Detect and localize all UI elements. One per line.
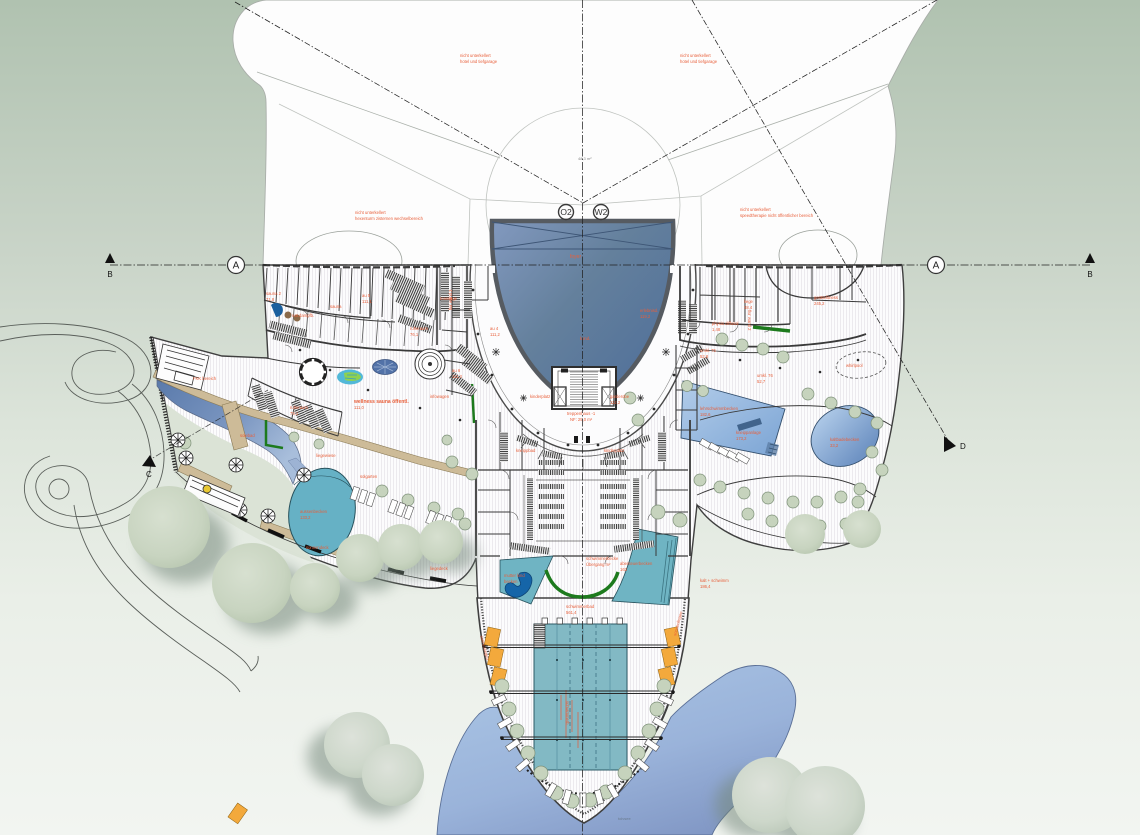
svg-text:au 6: au 6 — [452, 368, 461, 373]
svg-text:Übergang m²: Übergang m² — [586, 562, 611, 567]
svg-text:ruheraum: ruheraum — [410, 326, 428, 331]
svg-text:52,8: 52,8 — [700, 354, 709, 359]
svg-text:kneippbad: kneippbad — [516, 448, 536, 453]
svg-text:A: A — [933, 261, 940, 272]
svg-text:au 5: au 5 — [362, 293, 371, 298]
svg-text:D: D — [960, 442, 966, 451]
svg-text:52,7: 52,7 — [757, 379, 766, 384]
svg-text:becken: becken — [504, 579, 518, 584]
svg-text:111,3: 111,3 — [452, 374, 463, 379]
svg-text:71,8: 71,8 — [266, 297, 275, 302]
svg-text:lehrschwimmbecken: lehrschwimmbecken — [700, 406, 739, 411]
svg-text:48,3 m²: 48,3 m² — [578, 156, 592, 161]
svg-text:hotel und tiefgarage: hotel und tiefgarage — [680, 59, 718, 64]
svg-text:kinderplatz: kinderplatz — [604, 448, 624, 453]
svg-text:flur wand 3: flur wand 3 — [448, 289, 453, 310]
svg-text:nicht unterkellert: nicht unterkellert — [355, 210, 387, 215]
svg-text:173,2: 173,2 — [736, 436, 747, 441]
svg-text:whirlpool: whirlpool — [846, 363, 863, 368]
svg-text:79,1: 79,1 — [290, 411, 299, 416]
svg-text:au 4: au 4 — [490, 326, 499, 331]
svg-text:liegedeck: liegedeck — [430, 566, 449, 571]
svg-text:solebad: solebad — [240, 433, 255, 438]
svg-text:111,2: 111,2 — [490, 332, 501, 337]
svg-text:33,2: 33,2 — [830, 443, 839, 448]
svg-text:gerätefitness: gerätefitness — [814, 295, 838, 300]
svg-text:kinderplatz: kinderplatz — [530, 394, 550, 399]
svg-text:sauna 2: sauna 2 — [266, 291, 282, 296]
svg-text:nicht unterkellert: nicht unterkellert — [460, 53, 492, 58]
svg-text:A: A — [233, 261, 240, 272]
svg-text:umkl. 75: umkl. 75 — [700, 348, 716, 353]
svg-text:nat.dampfb.: nat.dampfb. — [292, 313, 314, 318]
svg-text:infowagen: infowagen — [430, 394, 450, 399]
svg-text:schwimmerbecke: schwimmerbecke — [586, 556, 619, 561]
svg-text:182,6: 182,6 — [700, 412, 711, 417]
svg-text:NF: 25,0 m²: NF: 25,0 m² — [570, 417, 593, 422]
svg-text:aussenbecken: aussenbecken — [300, 509, 328, 514]
svg-text:umkl. 76: umkl. 76 — [757, 373, 773, 378]
svg-text:hexenturm zisternen wechselber: hexenturm zisternen wechselbereich — [355, 216, 424, 221]
svg-text:ruheraum: ruheraum — [290, 405, 308, 410]
svg-text:liege: liege — [744, 299, 754, 304]
svg-text:erlebnisd.: erlebnisd. — [640, 308, 658, 313]
svg-text:FKK bereich: FKK bereich — [193, 376, 217, 381]
svg-text:B: B — [107, 270, 112, 279]
svg-text:hotel und tiefgarage: hotel und tiefgarage — [460, 59, 498, 64]
svg-text:111,1: 111,1 — [362, 299, 373, 304]
svg-text:schwimmerbad: schwimmerbad — [566, 604, 595, 609]
svg-text:tolvsee: tolvsee — [618, 816, 631, 821]
svg-text:kalt + schwimm: kalt + schwimm — [700, 578, 729, 583]
svg-text:nicht unterkellert: nicht unterkellert — [740, 207, 772, 212]
svg-text:speedtherapie nicht öffentlich: speedtherapie nicht öffentlicher bereich — [740, 213, 814, 218]
svg-text:1,48: 1,48 — [712, 327, 721, 332]
svg-text:flur wand 2: flur wand 2 — [747, 310, 752, 331]
svg-text:133,2: 133,2 — [300, 515, 311, 520]
svg-text:sauna: sauna — [330, 304, 342, 309]
svg-text:C: C — [146, 470, 152, 479]
svg-text:solgarten: solgarten — [360, 474, 378, 479]
svg-text:treppenhaus -1: treppenhaus -1 — [567, 411, 596, 416]
svg-text:foyer: foyer — [570, 254, 581, 260]
svg-text:111,0: 111,0 — [354, 405, 365, 410]
svg-text:nicht unterkellert: nicht unterkellert — [680, 53, 712, 58]
svg-text:245,2: 245,2 — [814, 301, 825, 306]
svg-text:sonnendeck: sonnendeck — [306, 545, 329, 550]
svg-text:kneippanlage: kneippanlage — [736, 430, 762, 435]
svg-text:B: B — [1087, 270, 1092, 279]
svg-text:76,1: 76,1 — [410, 332, 419, 337]
svg-text:mutter kind: mutter kind — [504, 573, 525, 578]
svg-text:561,4: 561,4 — [566, 610, 577, 615]
svg-text:O2: O2 — [560, 207, 572, 217]
svg-text:112,2: 112,2 — [610, 400, 621, 405]
svg-text:abenteuerbecken: abenteuerbecken — [620, 561, 653, 566]
svg-text:physio diffusal: physio diffusal — [712, 321, 739, 326]
svg-text:schwimmerb.: schwimmerb. — [565, 701, 570, 726]
svg-text:186,4: 186,4 — [700, 584, 711, 589]
svg-text:garderobe: garderobe — [610, 394, 630, 399]
svg-text:kaltbadebecken: kaltbadebecken — [830, 437, 860, 442]
svg-text:W2: W2 — [595, 207, 608, 217]
svg-text:119,2: 119,2 — [640, 314, 651, 319]
svg-text:kond.: kond. — [580, 336, 590, 341]
svg-text:163: 163 — [620, 567, 628, 572]
svg-text:liegewiese: liegewiese — [316, 453, 336, 458]
